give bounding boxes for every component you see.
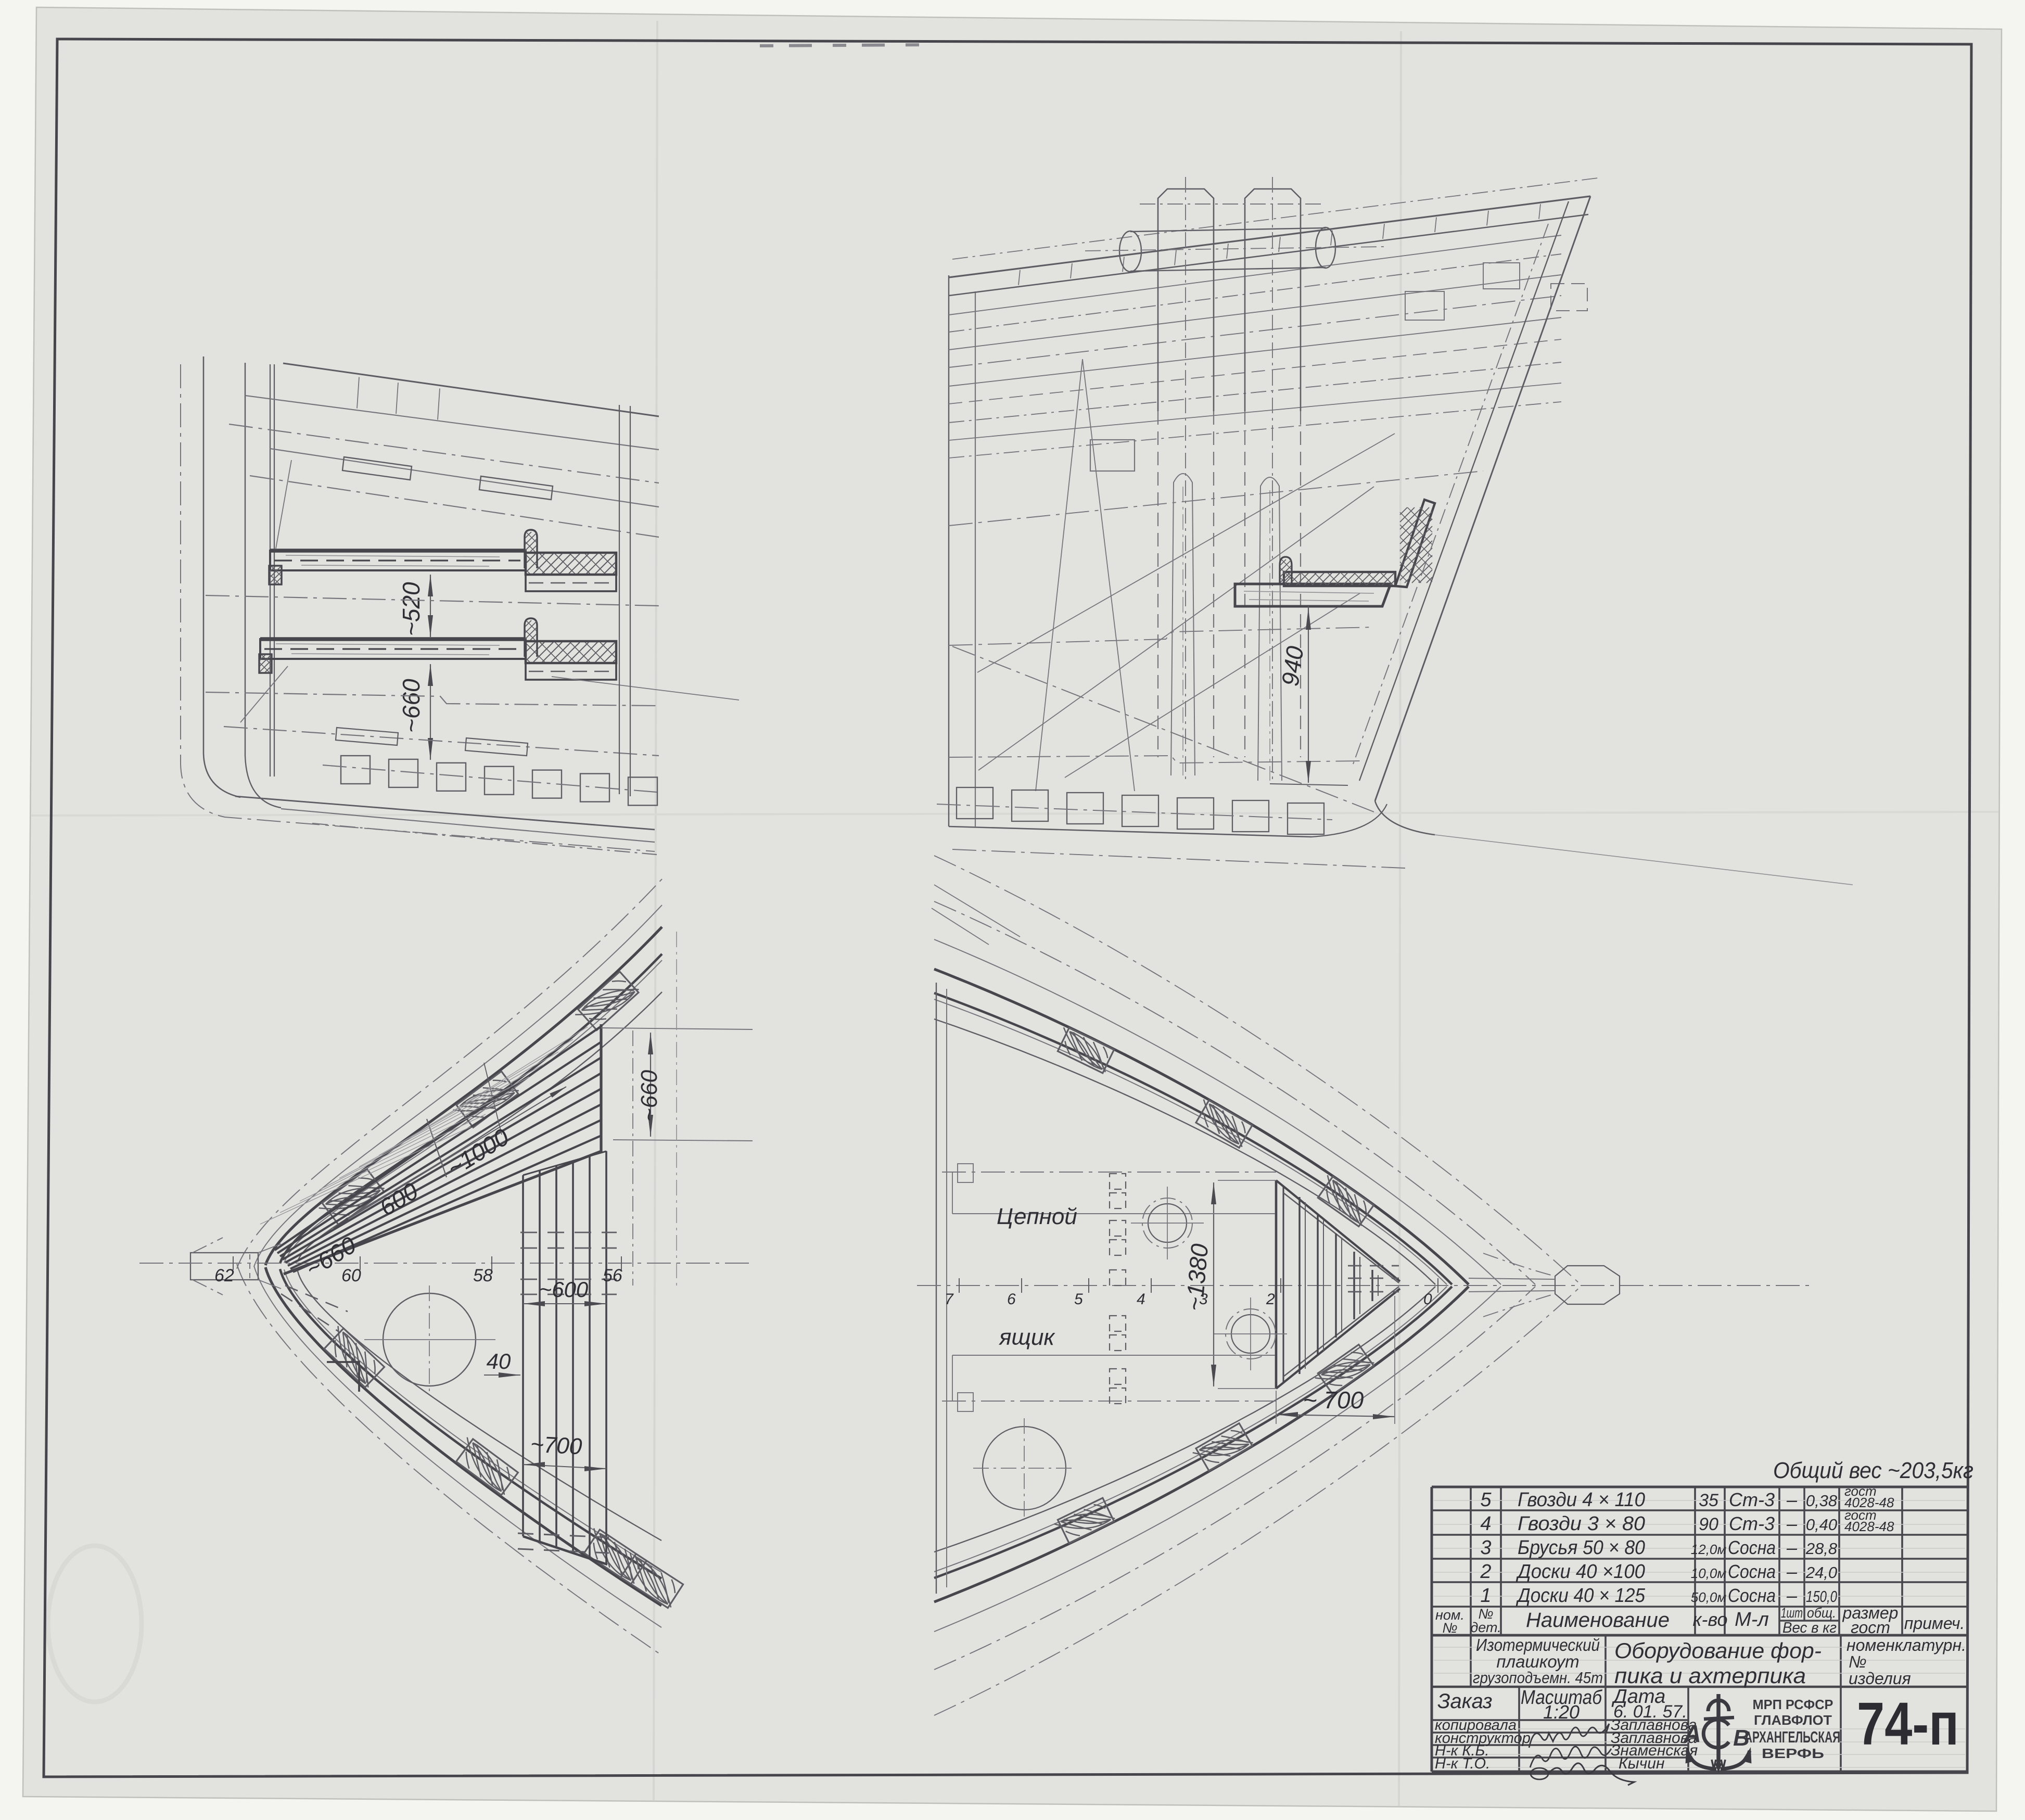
svg-text:28,8: 28,8: [1805, 1539, 1838, 1558]
svg-text:Гвозди 4 × 110: Гвозди 4 × 110: [1518, 1489, 1645, 1511]
svg-text:Ст-3: Ст-3: [1729, 1513, 1775, 1534]
svg-text:Заказ: Заказ: [1437, 1690, 1493, 1713]
svg-text:Цепной: Цепной: [997, 1204, 1077, 1229]
svg-text:Доски 40 × 125: Доски 40 × 125: [1515, 1585, 1645, 1607]
svg-text:56: 56: [603, 1266, 622, 1286]
svg-text:№: №: [1849, 1652, 1867, 1671]
svg-text:–: –: [1786, 1585, 1798, 1606]
svg-text:~600: ~600: [539, 1277, 589, 1302]
svg-text:Ст-3: Ст-3: [1729, 1489, 1775, 1510]
svg-text:74-п: 74-п: [1857, 1690, 1959, 1758]
svg-text:5: 5: [1074, 1291, 1083, 1308]
svg-text:2: 2: [1266, 1291, 1275, 1308]
svg-text:2: 2: [1480, 1561, 1491, 1583]
svg-text:гост: гост: [1851, 1618, 1890, 1637]
svg-text:А: А: [1683, 1720, 1701, 1747]
svg-text:0,38: 0,38: [1806, 1492, 1838, 1510]
svg-text:1: 1: [1480, 1585, 1491, 1607]
svg-text:Брусья 50 × 80: Брусья 50 × 80: [1518, 1537, 1645, 1559]
svg-text:Сосна: Сосна: [1728, 1561, 1776, 1582]
svg-text:Наименование: Наименование: [1526, 1609, 1670, 1632]
svg-text:3: 3: [1480, 1537, 1491, 1559]
svg-text:номенклатурн.: номенклатурн.: [1846, 1636, 1966, 1654]
svg-text:~520: ~520: [398, 582, 425, 636]
svg-text:ГЛАВФЛОТ: ГЛАВФЛОТ: [1754, 1712, 1832, 1728]
svg-text:35: 35: [1699, 1491, 1718, 1510]
svg-text:4: 4: [1480, 1513, 1491, 1535]
svg-text:24,0: 24,0: [1805, 1563, 1837, 1582]
svg-text:Общий вес ~203,5кг: Общий вес ~203,5кг: [1773, 1458, 1973, 1483]
svg-text:Кычин: Кычин: [1619, 1755, 1664, 1772]
svg-text:–: –: [1786, 1513, 1798, 1534]
svg-text:4028-48: 4028-48: [1844, 1519, 1894, 1534]
svg-text:1шт: 1шт: [1781, 1605, 1803, 1621]
svg-text:–: –: [1786, 1561, 1798, 1582]
svg-text:–: –: [1786, 1537, 1798, 1558]
svg-text:~700: ~700: [530, 1431, 583, 1459]
svg-text:40: 40: [487, 1349, 511, 1373]
svg-text:90: 90: [1699, 1514, 1718, 1534]
svg-text:4: 4: [1137, 1291, 1145, 1308]
svg-text:7: 7: [945, 1291, 954, 1308]
svg-text:6: 6: [1007, 1291, 1016, 1308]
svg-text:примеч.: примеч.: [1904, 1614, 1965, 1633]
svg-text:к-во: к-во: [1692, 1609, 1727, 1630]
svg-text:0: 0: [1423, 1291, 1432, 1308]
svg-text:Вес в кг: Вес в кг: [1782, 1620, 1837, 1636]
svg-text:~660: ~660: [398, 679, 425, 733]
svg-text:АРХАНГЕЛЬСКАЯ: АРХАНГЕЛЬСКАЯ: [1744, 1728, 1840, 1746]
svg-text:~660: ~660: [636, 1070, 662, 1122]
svg-text:Гвозди 3 × 80: Гвозди 3 × 80: [1518, 1513, 1645, 1535]
svg-text:50,0м: 50,0м: [1691, 1589, 1727, 1605]
svg-text:общ.: общ.: [1807, 1605, 1836, 1621]
svg-text:58: 58: [473, 1266, 493, 1286]
svg-text:60: 60: [341, 1266, 361, 1286]
svg-text:5: 5: [1480, 1489, 1492, 1511]
svg-text:Н-к Т.О.: Н-к Т.О.: [1435, 1755, 1490, 1772]
svg-text:МРП РСФСР: МРП РСФСР: [1753, 1697, 1833, 1712]
svg-text:62: 62: [214, 1266, 234, 1286]
svg-text:~ 700: ~ 700: [1303, 1386, 1364, 1414]
svg-text:грузоподъемн. 45т: грузоподъемн. 45т: [1473, 1669, 1603, 1687]
svg-text:10,0м: 10,0м: [1691, 1566, 1727, 1581]
svg-text:изделия: изделия: [1849, 1669, 1911, 1688]
svg-text:дет.: дет.: [1470, 1620, 1501, 1635]
svg-text:ящик: ящик: [998, 1325, 1055, 1350]
svg-text:№: №: [1442, 1620, 1457, 1636]
svg-text:3: 3: [1199, 1291, 1208, 1308]
svg-text:Сосна: Сосна: [1728, 1537, 1776, 1558]
svg-text:12,0м: 12,0м: [1691, 1542, 1727, 1557]
svg-text:ВЕРФЬ: ВЕРФЬ: [1762, 1746, 1824, 1761]
svg-text:1:20: 1:20: [1543, 1701, 1580, 1723]
svg-text:–: –: [1786, 1489, 1798, 1510]
svg-text:Сосна: Сосна: [1728, 1585, 1776, 1606]
svg-text:150,0: 150,0: [1806, 1587, 1837, 1606]
svg-text:0,40: 0,40: [1806, 1516, 1837, 1534]
svg-text:Оборудование фор-: Оборудование фор-: [1614, 1638, 1822, 1663]
svg-text:пика и ахтерпика: пика и ахтерпика: [1614, 1663, 1806, 1688]
svg-text:Доски 40 ×100: Доски 40 ×100: [1515, 1561, 1645, 1583]
svg-text:940: 940: [1276, 644, 1308, 688]
svg-text:М-л: М-л: [1735, 1609, 1769, 1631]
